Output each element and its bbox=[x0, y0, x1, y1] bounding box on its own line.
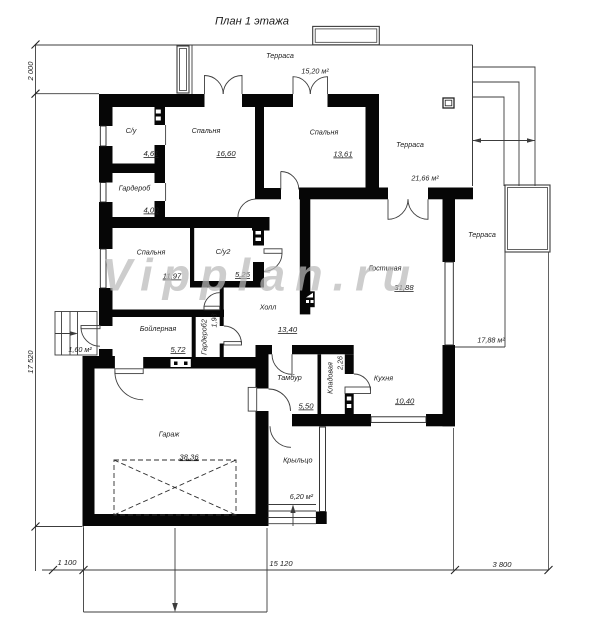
svg-text:5,72: 5,72 bbox=[171, 345, 187, 354]
svg-text:21,66 м²: 21,66 м² bbox=[410, 174, 439, 183]
svg-text:Кухня: Кухня bbox=[374, 374, 393, 383]
svg-text:Терраса: Терраса bbox=[468, 230, 496, 239]
svg-text:1 100: 1 100 bbox=[57, 558, 77, 567]
svg-text:16,60: 16,60 bbox=[216, 149, 236, 158]
svg-text:Спальня: Спальня bbox=[192, 126, 221, 135]
svg-text:10,40: 10,40 bbox=[395, 396, 415, 405]
svg-text:С/у: С/у bbox=[126, 126, 137, 135]
svg-text:1,98: 1,98 bbox=[210, 314, 219, 328]
svg-text:1,60 м²: 1,60 м² bbox=[68, 345, 92, 354]
svg-text:Кладовая: Кладовая bbox=[326, 362, 335, 394]
svg-text:Спальня: Спальня bbox=[310, 128, 339, 137]
svg-text:15 120: 15 120 bbox=[269, 559, 293, 568]
svg-text:5,50: 5,50 bbox=[299, 402, 315, 411]
svg-text:17,88 м²: 17,88 м² bbox=[477, 336, 505, 345]
svg-text:Холл: Холл bbox=[259, 303, 277, 312]
svg-text:Крыльцо: Крыльцо bbox=[283, 455, 312, 464]
svg-text:38,36: 38,36 bbox=[179, 452, 199, 461]
svg-text:Гараж: Гараж bbox=[159, 430, 181, 439]
svg-text:Гардероб: Гардероб bbox=[119, 184, 152, 193]
svg-text:План 1 этажа: План 1 этажа bbox=[215, 16, 289, 28]
svg-text:13,40: 13,40 bbox=[278, 325, 298, 334]
svg-text:Бойлерная: Бойлерная bbox=[140, 324, 177, 333]
svg-text:Vipplan.ru: Vipplan.ru bbox=[102, 250, 420, 301]
svg-text:Тамбур: Тамбур bbox=[277, 373, 302, 382]
svg-text:Гардероб2: Гардероб2 bbox=[200, 319, 209, 355]
svg-text:17 520: 17 520 bbox=[26, 350, 35, 374]
svg-text:15,20 м²: 15,20 м² bbox=[301, 67, 329, 76]
svg-text:3 800: 3 800 bbox=[492, 560, 512, 569]
svg-text:13,61: 13,61 bbox=[333, 150, 352, 159]
svg-text:4,61: 4,61 bbox=[144, 149, 159, 158]
svg-text:4,00: 4,00 bbox=[144, 206, 160, 215]
svg-text:6,20 м²: 6,20 м² bbox=[290, 492, 314, 501]
svg-text:2 000: 2 000 bbox=[26, 61, 35, 82]
svg-text:2,26: 2,26 bbox=[336, 356, 345, 371]
svg-text:Терраса: Терраса bbox=[396, 140, 424, 149]
svg-text:Терраса: Терраса bbox=[266, 51, 294, 60]
